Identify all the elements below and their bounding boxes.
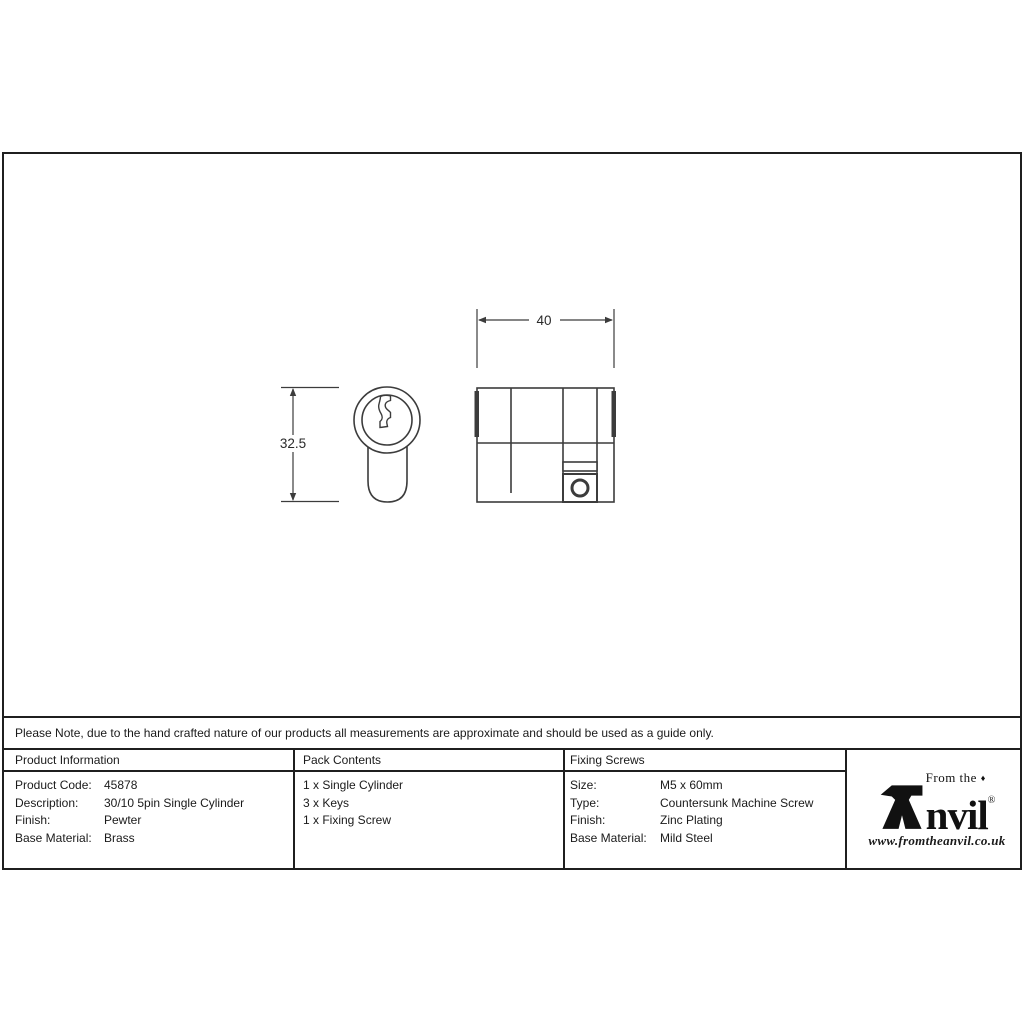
row-value: 30/10 5pin Single Cylinder (104, 795, 244, 813)
row-value: 45878 (104, 777, 137, 795)
width-dimension: 40 (477, 309, 614, 368)
table-row: Finish: Zinc Plating (570, 812, 813, 830)
table-row: Type: Countersunk Machine Screw (570, 795, 813, 813)
height-dim-label: 32.5 (280, 436, 306, 451)
column-divider (845, 750, 847, 868)
table-row: Description: 30/10 5pin Single Cylinder (15, 795, 244, 813)
pack-contents-body: 1 x Single Cylinder 3 x Keys 1 x Fixing … (303, 777, 403, 830)
product-information-title: Product Information (15, 753, 120, 767)
fixing-screws-body: Size: M5 x 60mm Type: Countersunk Machin… (570, 777, 813, 847)
technical-drawing: 32.5 40 (0, 0, 1024, 1024)
row-value: Zinc Plating (660, 812, 723, 830)
note-text: Please Note, due to the hand crafted nat… (4, 726, 714, 740)
fixing-screws-title: Fixing Screws (570, 753, 645, 767)
row-label: Product Code: (15, 777, 104, 795)
height-dimension: 32.5 (278, 388, 339, 502)
list-item: 1 x Fixing Screw (303, 812, 403, 830)
header-divider (4, 770, 845, 772)
fixing-screw-hole (572, 480, 588, 496)
row-label: Type: (570, 795, 660, 813)
dim-arrow-left (478, 317, 486, 323)
pack-contents-title: Pack Contents (303, 753, 381, 767)
row-value: Brass (104, 830, 135, 848)
side-view (475, 388, 617, 502)
anvil-icon (879, 780, 925, 830)
front-view (354, 387, 420, 502)
list-item: 3 x Keys (303, 795, 403, 813)
row-label: Base Material: (570, 830, 660, 848)
retainer-bar (563, 462, 597, 471)
face-rim-right (612, 391, 617, 437)
dim-arrow-down (290, 493, 296, 501)
table-row: Base Material: Brass (15, 830, 244, 848)
width-dim-label: 40 (536, 313, 551, 328)
face-rim-left (475, 391, 480, 437)
diamond-icon: ♦ (981, 773, 986, 783)
table-row: Base Material: Mild Steel (570, 830, 813, 848)
row-label: Finish: (570, 812, 660, 830)
row-value: Countersunk Machine Screw (660, 795, 813, 813)
dim-arrow-right (605, 317, 613, 323)
row-label: Base Material: (15, 830, 104, 848)
spec-sheet-page: { "colors": { "frame_border": "#1f1f1f",… (0, 0, 1024, 1024)
row-label: Description: (15, 795, 104, 813)
brand-logo: From the ♦ nvil® www.fromtheanvil.co.uk (858, 770, 1016, 849)
row-value: M5 x 60mm (660, 777, 723, 795)
dim-arrow-up (290, 388, 296, 396)
column-divider (293, 750, 295, 868)
table-row: Finish: Pewter (15, 812, 244, 830)
column-divider (563, 750, 565, 868)
row-value: Mild Steel (660, 830, 713, 848)
registered-mark: ® (988, 795, 996, 806)
logo-tagline: From the ♦ (926, 770, 996, 786)
row-label: Finish: (15, 812, 104, 830)
logo-website: www.fromtheanvil.co.uk (858, 833, 1016, 849)
row-value: Pewter (104, 812, 141, 830)
note-bar: Please Note, due to the hand crafted nat… (2, 716, 1022, 750)
row-label: Size: (570, 777, 660, 795)
table-row: Size: M5 x 60mm (570, 777, 813, 795)
list-item: 1 x Single Cylinder (303, 777, 403, 795)
logo-wordmark: nvil® (926, 786, 996, 830)
table-row: Product Code: 45878 (15, 777, 244, 795)
product-information-body: Product Code: 45878 Description: 30/10 5… (15, 777, 244, 847)
